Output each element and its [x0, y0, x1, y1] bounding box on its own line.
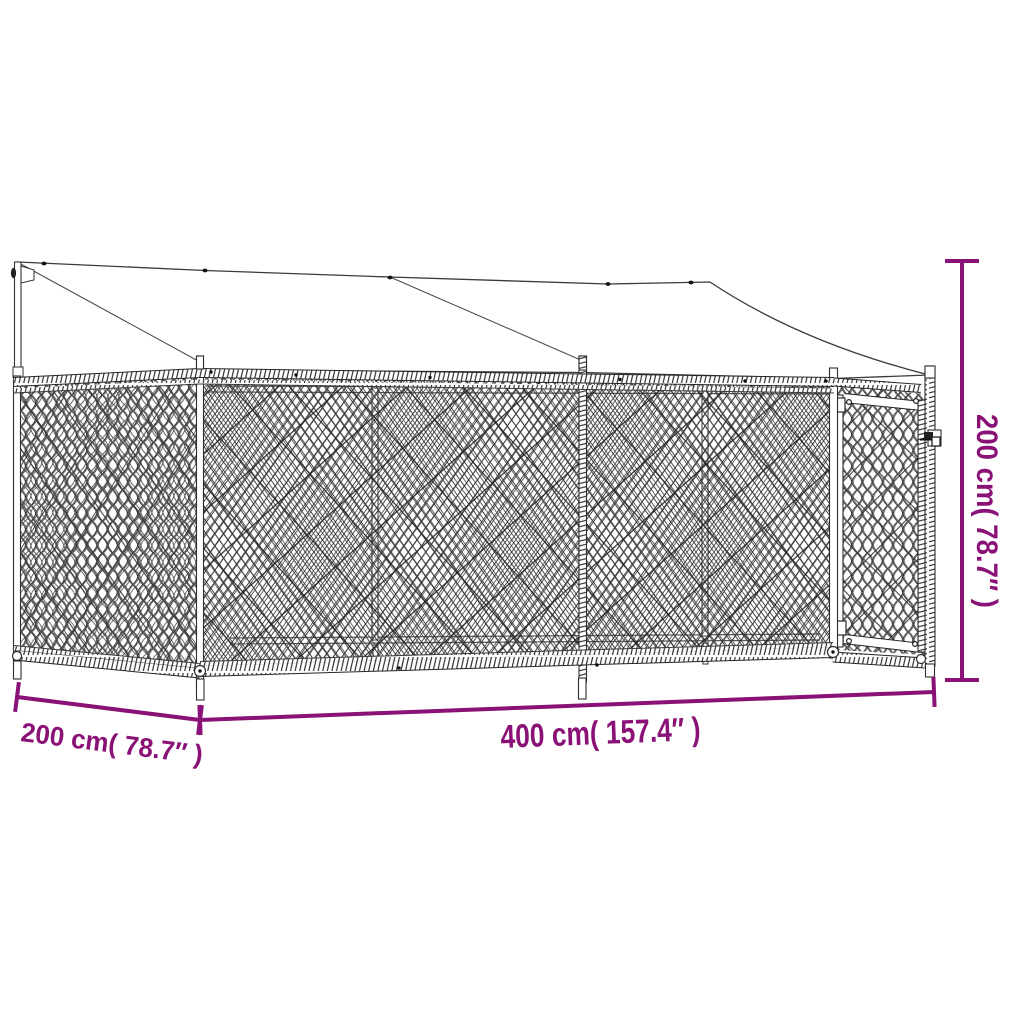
svg-text:200 cm( 78.7″ ): 200 cm( 78.7″ )	[970, 414, 1003, 608]
